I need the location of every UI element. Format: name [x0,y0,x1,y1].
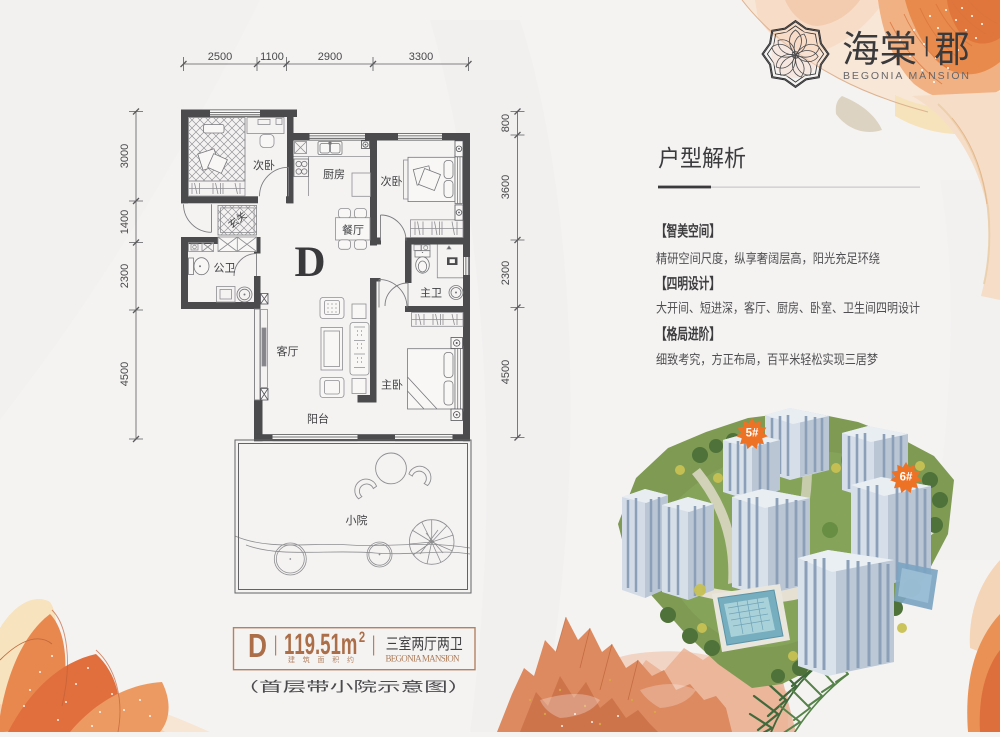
svg-text:次卧: 次卧 [253,158,275,172]
svg-text:3300: 3300 [409,51,433,63]
svg-text:BEGONIA MANSION: BEGONIA MANSION [386,654,461,664]
svg-text:主卧: 主卧 [381,379,403,392]
svg-text:2300: 2300 [500,261,512,285]
svg-text:1100: 1100 [260,51,284,63]
svg-text:4500: 4500 [119,362,131,386]
svg-text:【格局进阶】: 【格局进阶】 [656,325,720,343]
svg-text:餐厅: 餐厅 [342,223,364,237]
svg-text:三室两厅两卫: 三室两厅两卫 [386,635,463,653]
svg-text:（首层带小院示意图）: （首层带小院示意图） [235,679,471,695]
svg-text:主卫: 主卫 [420,287,442,300]
svg-text:2900: 2900 [318,51,342,63]
svg-text:3000: 3000 [119,144,131,168]
svg-text:2300: 2300 [119,264,131,288]
svg-text:800: 800 [500,114,512,132]
svg-text:小院: 小院 [346,513,368,527]
svg-text:【四明设计】: 【四明设计】 [656,275,720,293]
svg-text:D: D [294,239,325,286]
svg-text:海棠: 海棠 [842,29,917,70]
svg-text:郡: 郡 [935,29,970,70]
svg-text:细致考究，方正布局，百平米轻松实现三居梦: 细致考究，方正布局，百平米轻松实现三居梦 [656,352,878,367]
svg-text:2500: 2500 [208,51,232,63]
svg-text:1400: 1400 [119,210,131,234]
svg-text:公卫: 公卫 [214,263,236,275]
svg-text:【智美空间】: 【智美空间】 [656,222,720,240]
svg-text:4500: 4500 [500,360,512,384]
svg-text:大开间、短进深，客厅、厨房、卧室、卫生间四明设计: 大开间、短进深，客厅、厨房、卧室、卫生间四明设计 [656,301,920,316]
svg-text:阳台: 阳台 [307,412,329,426]
svg-text:厨房: 厨房 [323,168,345,181]
svg-text:3600: 3600 [500,175,512,199]
svg-text:客厅: 客厅 [277,344,299,358]
svg-text:户型解析: 户型解析 [658,145,746,171]
svg-text:5#: 5# [746,428,759,440]
svg-text:D: D [248,627,267,664]
svg-text:次卧: 次卧 [381,174,403,188]
svg-text:精研空间尺度，纵享奢阔层高，阳光充足环绕: 精研空间尺度，纵享奢阔层高，阳光充足环绕 [656,251,880,266]
svg-text:6#: 6# [900,472,913,484]
